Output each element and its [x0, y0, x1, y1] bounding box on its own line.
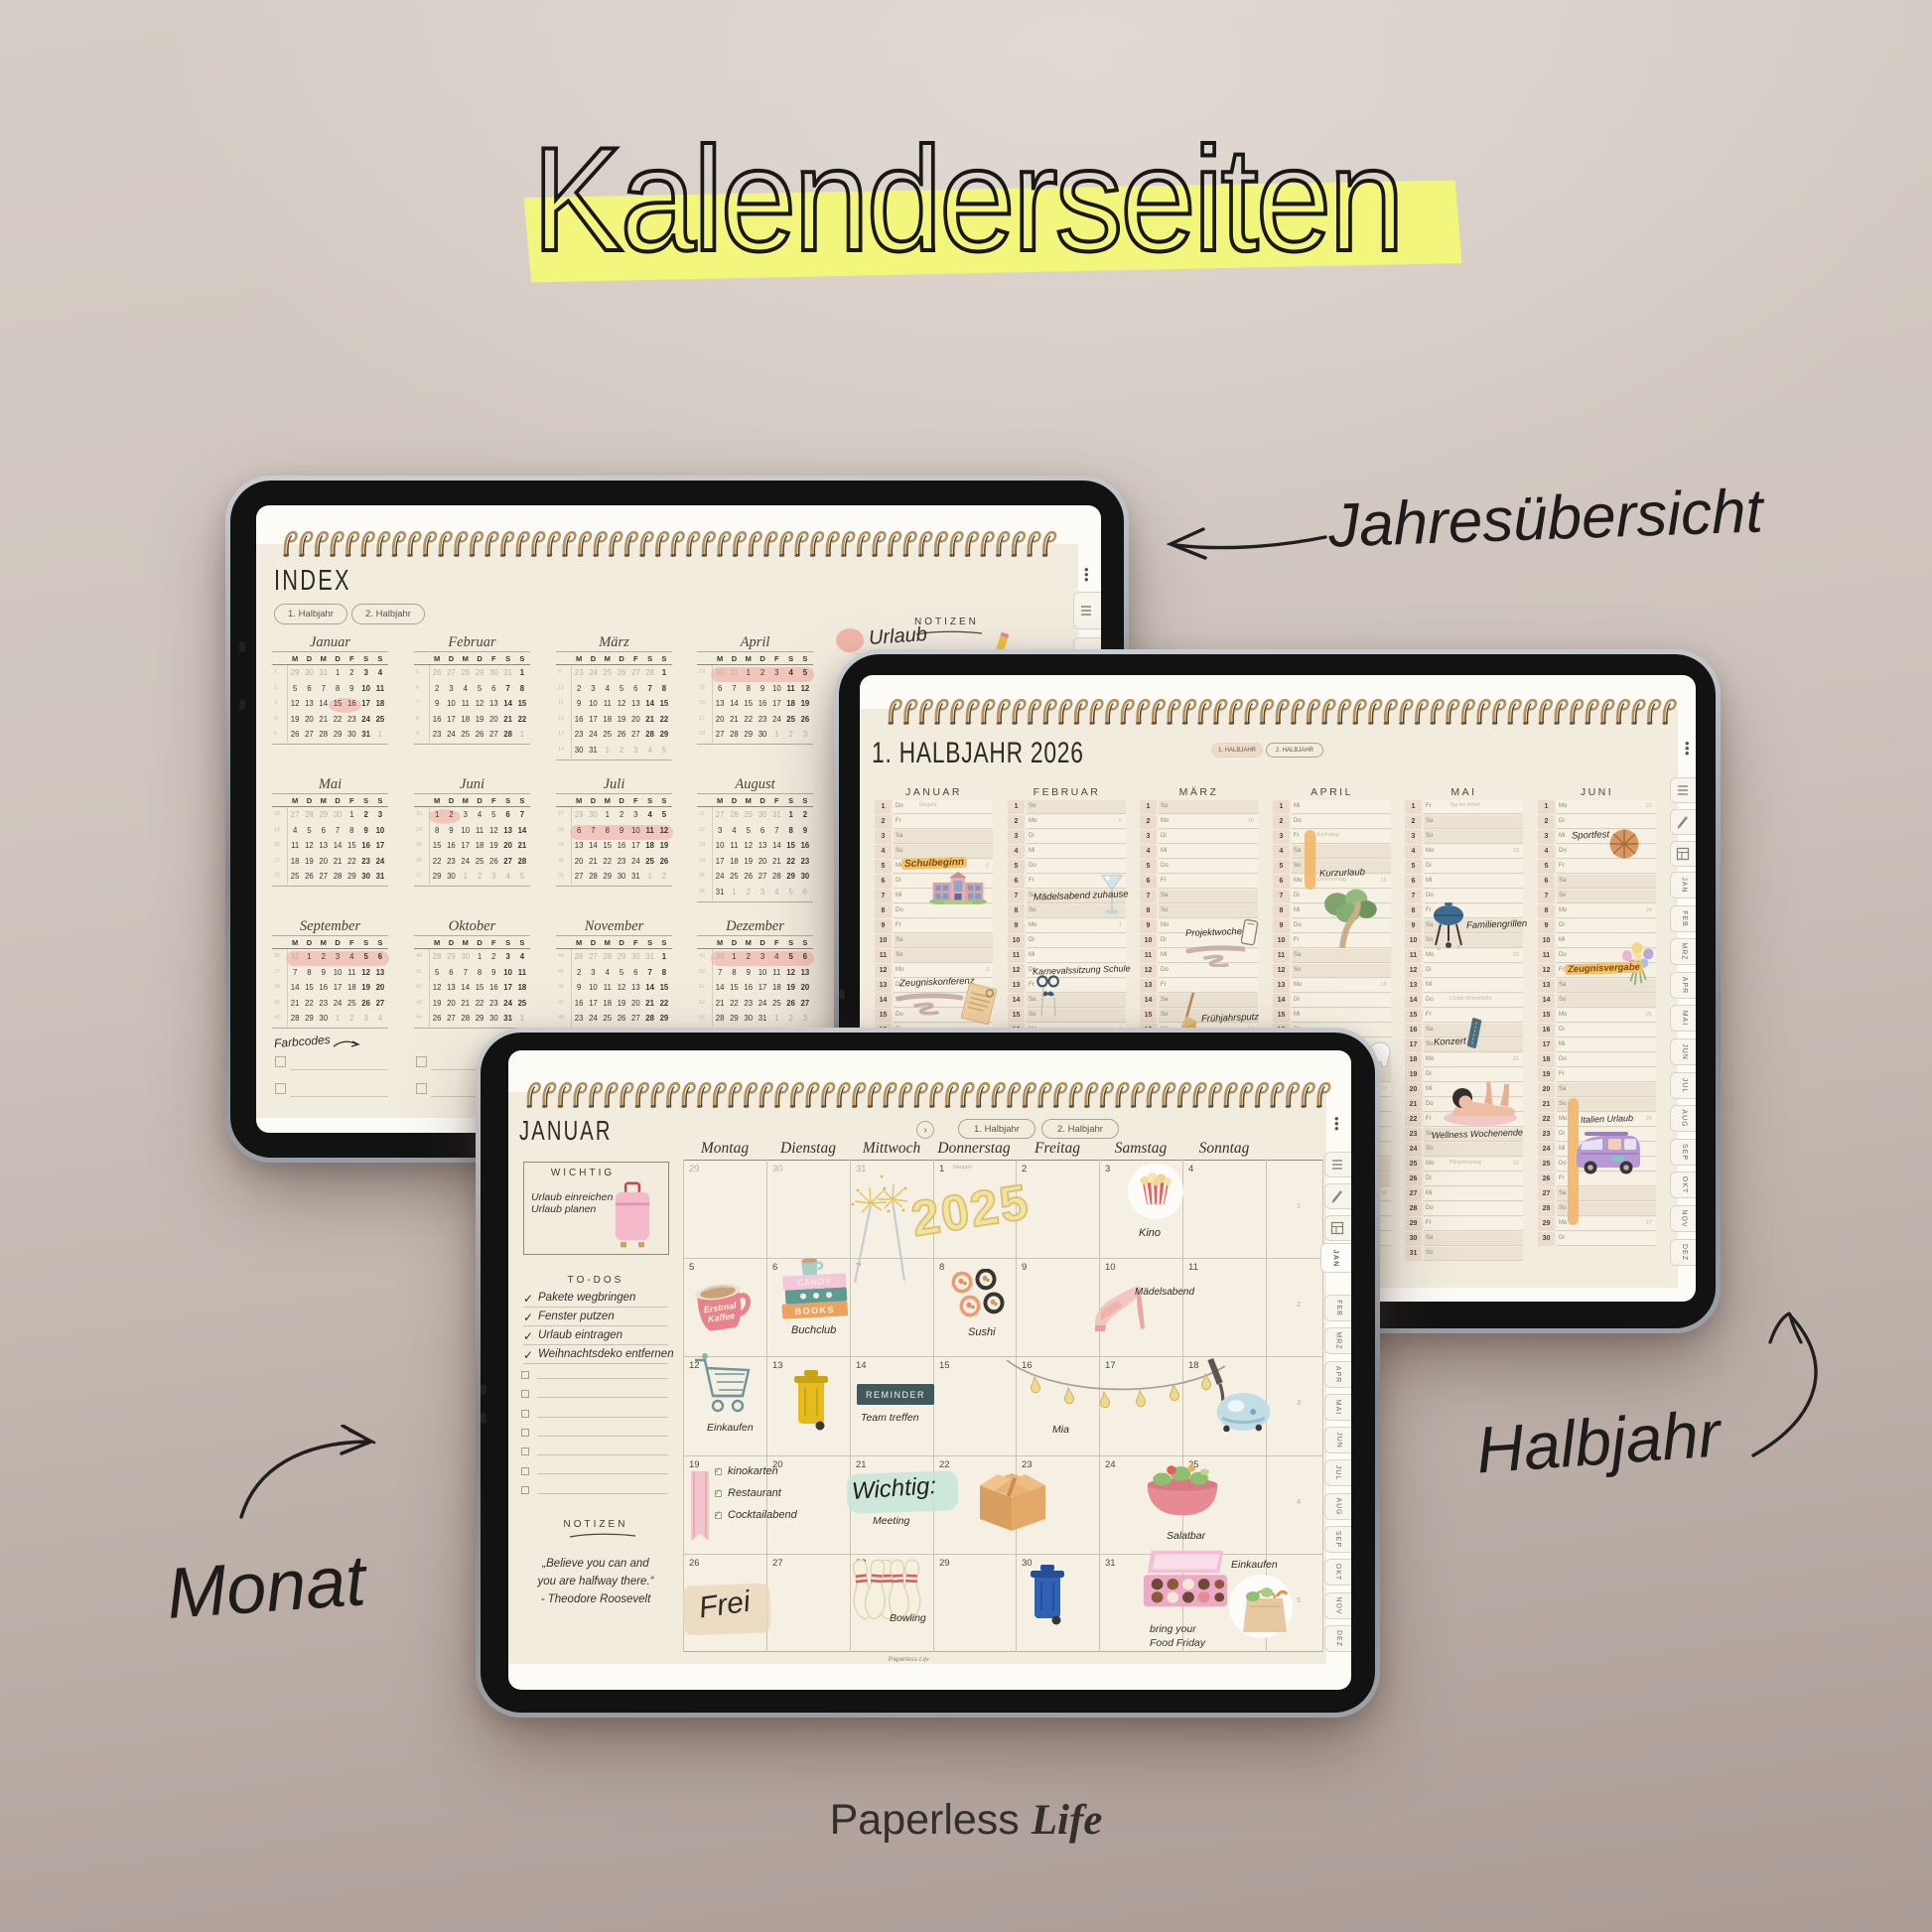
svg-text:BOOKS: BOOKS: [794, 1305, 835, 1316]
svg-text:CANDY: CANDY: [797, 1276, 832, 1288]
